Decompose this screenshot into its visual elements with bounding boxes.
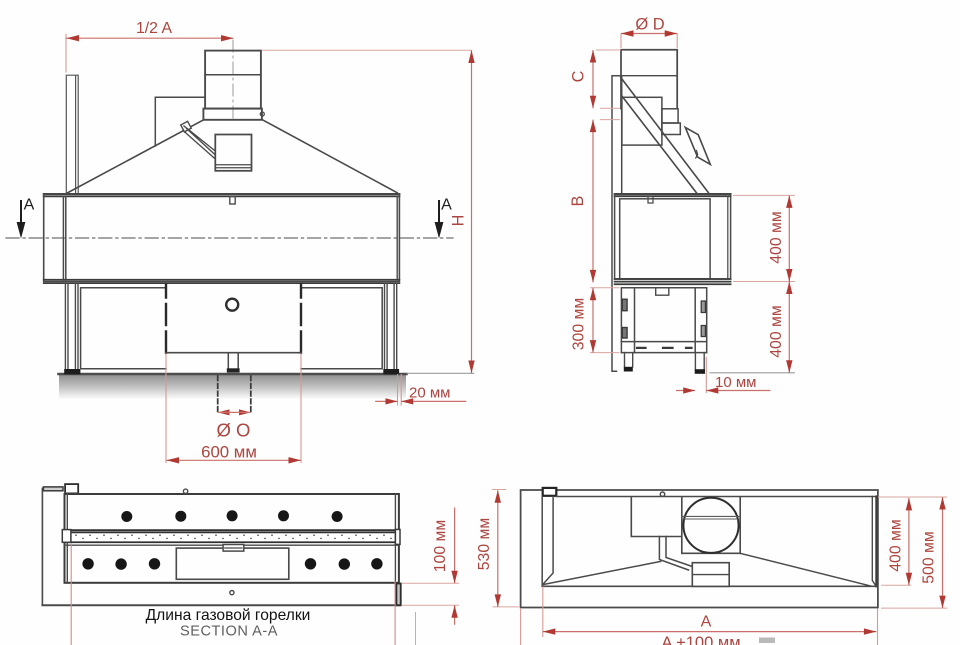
- svg-text:500 мм: 500 мм: [921, 531, 938, 583]
- svg-text:H: H: [450, 215, 468, 227]
- svg-text:A: A: [701, 614, 712, 631]
- svg-text:SECTION A-A: SECTION A-A: [180, 624, 278, 640]
- svg-text:Длина газовой горелки: Длина газовой горелки: [146, 607, 311, 624]
- svg-text:10 мм: 10 мм: [715, 374, 756, 391]
- svg-text:Ø D: Ø D: [635, 16, 664, 34]
- svg-text:Ø O: Ø O: [217, 420, 251, 441]
- svg-text:400 мм: 400 мм: [888, 519, 905, 571]
- svg-text:1/2 A: 1/2 A: [136, 20, 172, 37]
- svg-text:300 мм: 300 мм: [571, 298, 588, 350]
- svg-text:A: A: [441, 197, 452, 214]
- svg-text:C: C: [570, 70, 588, 82]
- svg-text:100 мм: 100 мм: [432, 520, 449, 572]
- svg-text:A +100 мм: A +100 мм: [661, 634, 740, 645]
- svg-text:400 мм: 400 мм: [768, 211, 785, 263]
- svg-text:A: A: [24, 197, 35, 214]
- svg-text:530 мм: 530 мм: [476, 518, 493, 570]
- svg-text:600 мм: 600 мм: [201, 443, 257, 462]
- svg-text:400 мм: 400 мм: [768, 305, 785, 357]
- svg-text:20 мм: 20 мм: [409, 384, 450, 401]
- svg-text:B: B: [569, 196, 587, 207]
